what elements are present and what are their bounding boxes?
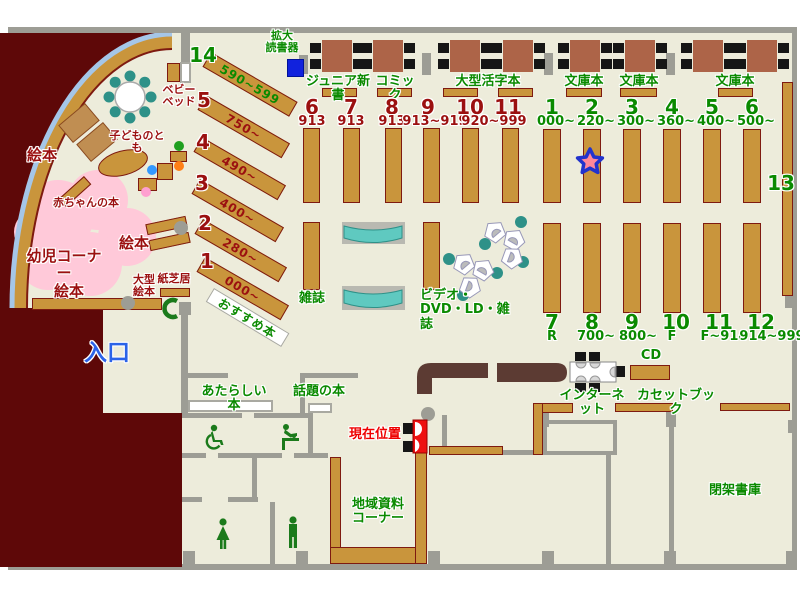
stool-blue [147,165,157,175]
phone-icon [165,300,178,317]
label-ehon-3: 絵本 [51,283,87,300]
label-atarashii: あたらしい本 [198,385,270,414]
label-kodomo: 子どものとも [106,130,168,154]
label-ehon-1: 絵本 [24,147,60,164]
library-floor-map: 590~599 750~ 490~ 400~ 280~ 000~ おすすめ本 [0,0,800,600]
pillar-round-1 [174,221,188,235]
counter-L [417,363,488,394]
num-14: 14 [188,44,218,66]
label-ehon-2: 絵本 [116,235,152,252]
label-wadai: 話題の本 [292,385,346,399]
label-cassette: カセットブック [636,389,716,418]
label-zasshi: 雑誌 [297,292,327,306]
label-bunko-2: 文庫本 [618,75,660,89]
range-r6: 500~ [728,115,784,129]
stool-green [174,141,184,151]
label-kakudai: 拡大 読書器 [258,30,306,54]
stool-orange [174,161,184,171]
num-2: 2 [190,212,220,234]
internet-station [570,352,625,392]
facility-icons [165,300,300,549]
label-bunko-3: 文庫本 [714,75,756,89]
label-kamishibai: 紙芝居 [154,273,194,285]
kids-round-table [104,71,157,124]
num-1: 1 [192,250,222,272]
label-genzai: 現在位置 [346,428,404,442]
wheelchair-icon [207,425,224,449]
womens-toilet-icon [217,518,230,549]
teal-benches [342,222,405,310]
num-4: 4 [188,131,218,153]
brange-r12: 914~999 [736,330,800,344]
num-3: 3 [187,172,217,194]
star-icon [578,149,603,172]
stool-pink [141,187,151,197]
pillar-round-3 [421,407,435,421]
label-heika: 閉架書庫 [706,484,764,498]
current-location-marker [403,420,427,453]
num-13: 13 [764,172,798,194]
label-internet: インターネット [554,389,630,418]
baby-change-icon [282,424,299,450]
num-5: 5 [189,89,219,111]
label-youji: 幼児コーナー [20,248,108,281]
label-chiiki: 地域資料 コーナー [347,498,409,527]
label-iriguchi: 入口 [82,341,132,366]
counter-round [497,363,567,382]
sub-m10-11: 920~999 [459,115,529,129]
study-tables [310,40,789,72]
label-cd: CD [638,349,664,363]
label-video: ビデオ・ DVD・LD・雑誌 [420,289,520,332]
label-bunko-1: 文庫本 [563,75,605,89]
label-ogata: 大型活字本 [455,75,521,89]
mens-toilet-icon [289,516,297,548]
label-akachan: 赤ちゃんの本 [52,197,120,209]
